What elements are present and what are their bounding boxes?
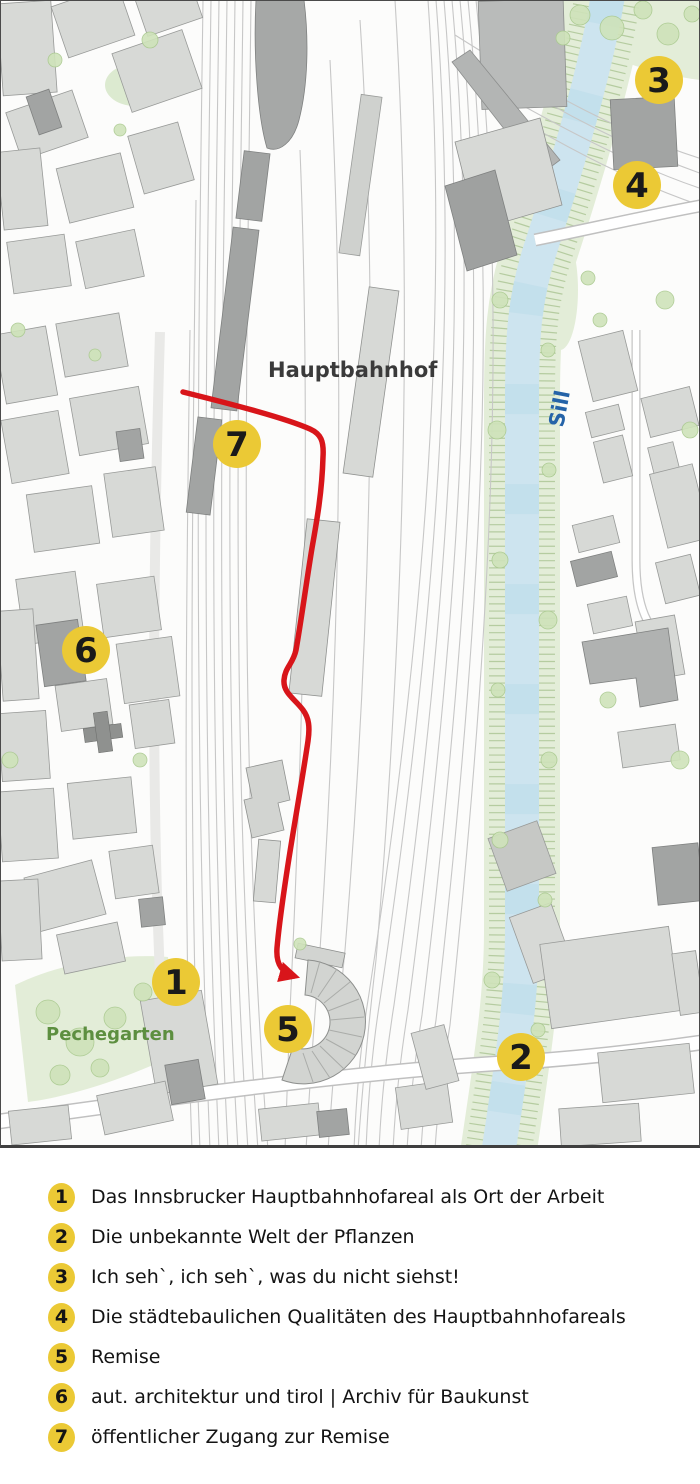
svg-text:2: 2	[509, 1038, 533, 1078]
svg-text:6: 6	[74, 631, 98, 671]
svg-text:7: 7	[225, 425, 249, 465]
legend-item-5: 5 Remise	[0, 1337, 700, 1377]
program-map-page: Hauptbahnhof Sill Pechegarten 1 2 3 4 5 …	[0, 0, 700, 1484]
legend-label-3: Ich seh`, ich seh`, was du nicht siehst!	[91, 1266, 460, 1288]
map-marker-3: 3	[635, 56, 683, 104]
svg-text:3: 3	[647, 61, 671, 101]
legend-item-6: 6 aut. architektur und tirol | Archiv fü…	[0, 1377, 700, 1417]
legend-item-2: 2 Die unbekannte Welt der Pflanzen	[0, 1217, 700, 1257]
legend-label-6: aut. architektur und tirol | Archiv für …	[91, 1386, 529, 1408]
legend-badge-5: 5	[48, 1343, 75, 1372]
legend-label-4: Die städtebaulichen Qualitäten des Haupt…	[91, 1306, 626, 1328]
legend-badge-4: 4	[48, 1303, 75, 1332]
legend: 1 Das Innsbrucker Hauptbahnhofareal als …	[0, 1177, 700, 1457]
legend-badge-1: 1	[48, 1183, 75, 1212]
legend-label-5: Remise	[91, 1346, 160, 1368]
map-graphic: Hauptbahnhof Sill Pechegarten 1 2 3 4 5 …	[1, 1, 699, 1145]
legend-item-4: 4 Die städtebaulichen Qualitäten des Hau…	[0, 1297, 700, 1337]
legend-badge-7: 7	[48, 1423, 75, 1452]
legend-label-1: Das Innsbrucker Hauptbahnhofareal als Or…	[91, 1186, 604, 1208]
city-map: Hauptbahnhof Sill Pechegarten 1 2 3 4 5 …	[0, 0, 700, 1148]
legend-badge-2: 2	[48, 1223, 75, 1252]
legend-label-2: Die unbekannte Welt der Pflanzen	[91, 1226, 415, 1248]
legend-label-7: öffentlicher Zugang zur Remise	[91, 1426, 390, 1448]
map-marker-2: 2	[497, 1033, 545, 1081]
legend-item-1: 1 Das Innsbrucker Hauptbahnhofareal als …	[0, 1177, 700, 1217]
svg-text:1: 1	[164, 963, 188, 1003]
map-marker-7: 7	[213, 420, 261, 468]
svg-text:5: 5	[276, 1010, 300, 1050]
legend-item-3: 3 Ich seh`, ich seh`, was du nicht siehs…	[0, 1257, 700, 1297]
legend-badge-3: 3	[48, 1263, 75, 1292]
park-label: Pechegarten	[46, 1024, 175, 1045]
map-marker-6: 6	[62, 626, 110, 674]
svg-text:4: 4	[625, 166, 649, 206]
station-label: Hauptbahnhof	[268, 358, 438, 382]
map-marker-5: 5	[264, 1005, 312, 1053]
map-marker-1: 1	[152, 958, 200, 1006]
legend-item-7: 7 öffentlicher Zugang zur Remise	[0, 1417, 700, 1457]
legend-badge-6: 6	[48, 1383, 75, 1412]
map-marker-4: 4	[613, 161, 661, 209]
